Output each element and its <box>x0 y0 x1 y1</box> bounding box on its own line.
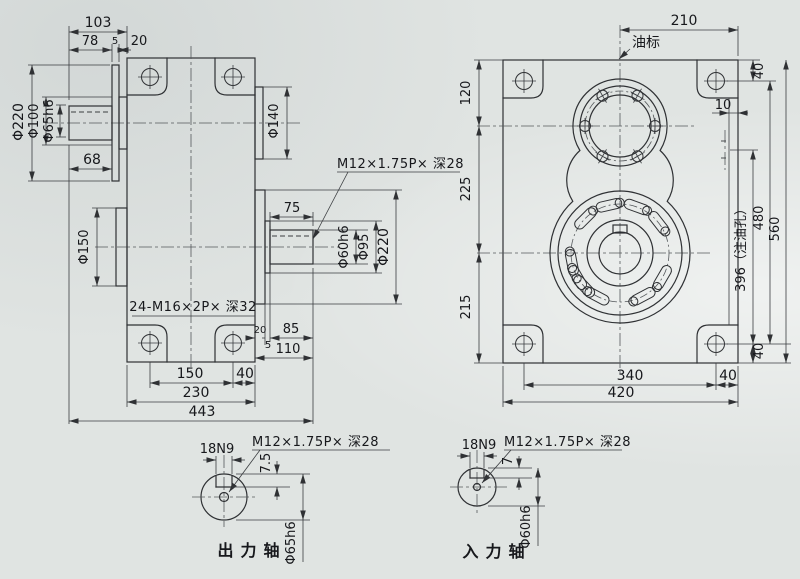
dim-210: 210 <box>671 13 698 29</box>
side-view: 103 78 5 20 Φ220 Φ100 Φ65h6 68 <box>11 15 464 424</box>
dim-560: 560 <box>768 217 783 242</box>
side-output-dims: 75 M12×1.75P× 深28 Φ60h6 Φ95 Φ220 <box>265 157 464 424</box>
dim-phi95: Φ95 <box>357 234 372 261</box>
dim-phi220-input: Φ220 <box>11 103 27 141</box>
input-shaft-detail: 18N9 M12×1.75P× 深28 7 Φ60h6 入力轴 <box>450 435 631 561</box>
dim-480: 480 <box>752 206 767 231</box>
dim-phi100: Φ100 <box>27 103 42 138</box>
dim-68: 68 <box>83 152 101 168</box>
keyway-depth-7: 7 <box>501 457 516 465</box>
dim-420: 420 <box>608 385 635 401</box>
dim-10: 10 <box>715 98 732 113</box>
dim-40-side: 40 <box>236 366 254 382</box>
dim-phi220-output: Φ220 <box>376 228 392 266</box>
dim-20b: 20 <box>254 325 267 336</box>
side-bolt-note: 24-M16×2P× 深32 <box>129 300 257 316</box>
output-shaft-title: 出力轴 <box>217 541 286 560</box>
side-tap-note: M12×1.75P× 深28 <box>337 157 464 172</box>
front-view: 油标 210 120 225 215 40 10 <box>459 13 791 407</box>
input-shaft-title: 入力轴 <box>462 542 531 561</box>
dim-443: 443 <box>189 404 216 420</box>
dim-40-bottom: 40 <box>719 368 737 384</box>
oil-gauge-text: 油标 <box>632 35 660 51</box>
bolt-note-text: 24-M16×2P× 深32 <box>129 300 257 315</box>
dim-85: 85 <box>283 322 300 337</box>
front-right-dims: 40 10 396（注油孔） 480 560 40 <box>712 60 791 363</box>
dim-103: 103 <box>85 15 112 31</box>
tab-top-left <box>127 58 167 95</box>
dim-340: 340 <box>617 368 644 384</box>
dim-phi150: Φ150 <box>77 229 92 264</box>
output-tap-note: M12×1.75P× 深28 <box>252 435 379 450</box>
dim-120: 120 <box>459 81 474 106</box>
oil-gauge-leader <box>619 49 630 59</box>
dim-150: 150 <box>177 366 204 382</box>
side-view-body <box>127 46 255 372</box>
dim-5: 5 <box>112 36 118 47</box>
dim-110: 110 <box>276 342 301 357</box>
side-bottom-dims: 150 40 230 443 <box>69 362 313 421</box>
keyway-dim-18N9: 18N9 <box>200 442 235 457</box>
side-bottom-right-dims: 20 5 85 110 <box>247 273 313 358</box>
front-bottom-dims: 340 40 420 <box>503 363 738 407</box>
keyway-dim-18N9: 18N9 <box>462 438 497 453</box>
dim-78: 78 <box>82 34 99 49</box>
dim-5b: 5 <box>265 340 271 351</box>
input-tap-note: M12×1.75P× 深28 <box>504 435 631 450</box>
side-left-dims: Φ220 Φ100 Φ65h6 68 Φ150 <box>11 65 116 424</box>
dim-75: 75 <box>284 201 301 216</box>
engineering-drawing: 103 78 5 20 Φ220 Φ100 Φ65h6 68 <box>0 0 800 579</box>
tab-bottom-left <box>127 325 167 362</box>
housing-outline <box>503 60 738 363</box>
dim-phi60h6-side: Φ60h6 <box>337 225 352 268</box>
dim-230: 230 <box>183 385 210 401</box>
output-shaft-detail: 18N9 M12×1.75P× 深28 7.5 Φ65h6 出力轴 <box>192 435 390 565</box>
dim-phi65h6: Φ65h6 <box>42 99 57 142</box>
front-left-dims: 120 225 215 <box>459 60 503 363</box>
dim-225: 225 <box>459 177 474 202</box>
dim-215: 215 <box>459 295 474 320</box>
output-shaft-side <box>95 87 340 304</box>
dim-phi140: Φ140 <box>267 103 282 138</box>
tab-top-right <box>697 60 738 98</box>
dim-40-right-bottom: 40 <box>752 343 767 360</box>
oil-gauge-label: 油标 <box>619 35 660 59</box>
dim-40-top: 40 <box>752 63 767 80</box>
tab-top-left <box>503 60 543 98</box>
dim-396-oil-hole: 396（注油孔） <box>734 202 749 292</box>
dim-20: 20 <box>131 34 148 49</box>
keyway-depth-7-5: 7.5 <box>259 453 274 474</box>
tab-bottom-right <box>215 325 255 362</box>
tab-top-right <box>215 58 255 95</box>
